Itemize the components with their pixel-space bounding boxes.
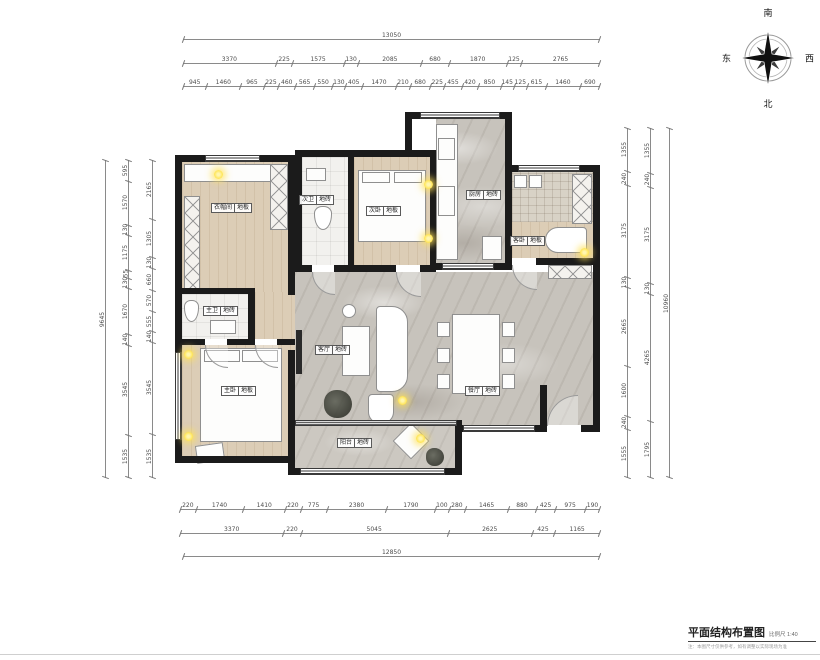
dim-segment: 2085	[358, 54, 421, 67]
dim-segment: 1465	[465, 500, 508, 513]
dim-segment: 220	[285, 500, 301, 513]
dim-segment: 13050	[183, 30, 600, 43]
dining-chair	[437, 348, 450, 363]
dim-segment: 100	[435, 500, 448, 513]
dim-segment: 1740	[196, 500, 244, 513]
dim-segment: 3175	[618, 185, 631, 277]
dim-segment: 420	[462, 77, 479, 90]
plant	[324, 390, 352, 418]
dim-segment: 1575	[292, 54, 343, 67]
dim-segment: 965	[240, 77, 264, 90]
stove	[438, 186, 455, 216]
window	[175, 352, 182, 440]
dim-segment: 425	[532, 524, 555, 537]
wall	[505, 172, 512, 265]
window	[295, 420, 457, 426]
dim-segment: 405	[345, 77, 362, 90]
dim-segment: 2165	[143, 160, 156, 219]
plant	[426, 448, 444, 466]
wardrobe	[572, 174, 592, 224]
pillow	[394, 172, 422, 183]
dim-segment: 1175	[119, 235, 132, 270]
dim-segment: 615	[527, 77, 546, 90]
dim-segment: 1355	[641, 128, 654, 173]
dim-segment: 220	[283, 524, 300, 537]
dim-segment: 660	[143, 268, 156, 291]
window	[205, 155, 260, 162]
tv	[296, 330, 302, 374]
washer	[514, 175, 527, 188]
dim-segment: 3545	[119, 345, 132, 435]
dining-chair	[437, 322, 450, 337]
wall	[295, 150, 436, 157]
dim-segment: 945	[183, 77, 206, 90]
dim-segment: 280	[449, 500, 466, 513]
dim-segment: 2380	[327, 500, 387, 513]
drawing-title: 平面结构布置图	[688, 624, 765, 640]
window	[463, 425, 535, 432]
wall	[540, 385, 547, 425]
dim-row-bottom-1: 2201740141022077523801790100280146588042…	[180, 500, 600, 513]
pouf	[342, 304, 356, 318]
dim-row-top-2: 33702251575130208568018701252765	[183, 54, 600, 67]
dim-segment: 570	[143, 290, 156, 311]
window	[420, 112, 500, 119]
dim-segment: 565	[295, 77, 314, 90]
door-opening	[512, 258, 536, 265]
room-label-kitchen: 厨房地砖	[466, 190, 501, 200]
window	[518, 165, 580, 172]
door-opening	[547, 425, 581, 432]
dim-segment: 975	[555, 500, 585, 513]
title-block: 平面结构布置图 比例尺 1:40 注：本图尺寸仅供参考，如有调整以实际现场为准	[688, 624, 816, 650]
wall	[348, 157, 354, 272]
dim-segment: 1460	[546, 77, 580, 90]
dim-segment: 1570	[119, 181, 132, 225]
dim-segment: 1555	[618, 429, 631, 478]
ceiling-light	[580, 248, 589, 257]
dim-segment: 1795	[641, 421, 654, 478]
dim-segment: 775	[301, 500, 327, 513]
dim-segment: 550	[314, 77, 332, 90]
ceiling-light	[184, 432, 193, 441]
dim-segment: 555	[143, 311, 156, 331]
dim-segment: 12850	[183, 547, 600, 560]
compass-label-south: 南	[763, 6, 772, 19]
dim-segment: 4265	[641, 294, 654, 421]
wall	[175, 288, 255, 294]
ceiling-light	[424, 180, 433, 189]
dim-segment: 190	[585, 500, 600, 513]
drawing-scale: 比例尺 1:40	[769, 630, 798, 638]
window	[442, 263, 494, 270]
dim-segment: 1355	[618, 128, 631, 171]
wall	[295, 157, 302, 272]
room-label-dining: 餐厅地砖	[465, 386, 500, 396]
dim-segment: 240	[618, 171, 631, 184]
washer	[529, 175, 542, 188]
wall	[430, 150, 436, 270]
dim-segment: 1165	[554, 524, 600, 537]
compass-rose: 南 北 东 西	[722, 6, 814, 110]
dim-segment: 455	[444, 77, 461, 90]
dining-chair	[502, 322, 515, 337]
dim-segment: 2765	[521, 54, 600, 67]
dim-segment: 3370	[183, 54, 276, 67]
door-opening	[396, 265, 420, 272]
dim-segment: 5045	[301, 524, 448, 537]
dim-col-right-total: 10960	[660, 128, 673, 478]
dim-col-left-a: 5951570130117555130167014035451535	[119, 160, 132, 478]
dim-segment: 125	[514, 77, 527, 90]
wardrobe	[184, 196, 200, 290]
wall	[175, 456, 295, 463]
shoe-cabinet	[548, 265, 592, 279]
dim-segment: 3175	[641, 187, 654, 283]
compass-label-east: 东	[722, 52, 731, 65]
door-opening	[312, 265, 334, 272]
dim-row-top-3: 9451460965225460565550130405147021068022…	[183, 77, 600, 90]
dim-segment: 3545	[143, 342, 156, 434]
wall	[593, 165, 600, 432]
floor-plan-sheet: 衣帽间地板次卫地砖次卧地板厨房地砖客卧地板主卫地砖主卧地板客厅地砖餐厅地砖阳台地…	[0, 0, 820, 660]
kitchen-sink	[438, 138, 455, 160]
dim-segment: 1460	[206, 77, 240, 90]
ceiling-light	[424, 234, 433, 243]
dim-segment: 1535	[143, 434, 156, 478]
wall	[288, 155, 295, 295]
ceiling-light	[398, 396, 407, 405]
dim-segment: 240	[641, 173, 654, 187]
room-label-cloakroom: 衣帽间地板	[211, 203, 252, 213]
ceiling-light	[184, 350, 193, 359]
dim-segment: 145	[501, 77, 514, 90]
sofa	[376, 306, 408, 392]
ceiling-light	[416, 434, 425, 443]
washbasin	[306, 168, 326, 181]
dim-segment: 850	[478, 77, 500, 90]
dim-segment: 690	[580, 77, 600, 90]
dim-segment: 2665	[618, 287, 631, 365]
dim-row-bottom-total: 12850	[183, 547, 600, 560]
dim-segment: 1870	[449, 54, 507, 67]
dim-segment: 680	[421, 54, 448, 67]
wall	[505, 112, 512, 172]
dim-segment: 1600	[618, 366, 631, 416]
drawing-note: 注：本图尺寸仅供参考，如有调整以实际现场为准	[688, 644, 816, 650]
fridge	[482, 236, 502, 260]
dim-segment: 460	[278, 77, 295, 90]
dim-segment: 595	[119, 160, 132, 181]
room-label-balcony: 阳台地砖	[337, 438, 372, 448]
pillow	[362, 172, 390, 183]
dining-table	[452, 314, 500, 394]
compass-star-icon	[722, 6, 814, 110]
dim-segment: 125	[507, 54, 521, 67]
compass-label-west: 西	[805, 52, 814, 65]
dim-segment: 1790	[386, 500, 435, 513]
dim-segment: 880	[508, 500, 536, 513]
wall	[288, 350, 295, 456]
dim-col-left-b: 2165130513066057055514035451535	[143, 160, 156, 478]
dining-chair	[502, 348, 515, 363]
dim-segment: 1470	[362, 77, 396, 90]
dim-segment: 1305	[143, 219, 156, 257]
room-label-bath2: 次卫地砖	[299, 195, 334, 205]
ceiling-light	[214, 170, 223, 179]
compass-label-north: 北	[763, 97, 772, 110]
dim-segment: 225	[276, 54, 293, 67]
dining-chair	[437, 374, 450, 389]
dining-chair	[502, 374, 515, 389]
dim-row-top-total: 13050	[183, 30, 600, 43]
dim-col-left-total: 9645	[96, 160, 109, 478]
dim-segment: 220	[180, 500, 196, 513]
room-label-living: 客厅地砖	[315, 345, 350, 355]
room-label-bath1: 主卫地砖	[203, 306, 238, 316]
dim-segment: 10960	[660, 128, 673, 478]
dim-segment: 225	[264, 77, 278, 90]
dim-segment: 425	[536, 500, 555, 513]
wardrobe	[270, 164, 288, 230]
dim-segment: 210	[396, 77, 410, 90]
room-label-bed2: 次卧地板	[366, 206, 401, 216]
window	[300, 468, 445, 475]
dim-segment: 1410	[243, 500, 285, 513]
wall	[248, 288, 255, 345]
dim-row-bottom-2: 3370220504526254251165	[180, 524, 600, 537]
dim-segment: 1535	[119, 435, 132, 478]
dim-segment: 1670	[119, 288, 132, 334]
room-label-guestbed: 客卧地板	[510, 236, 545, 246]
room-label-bed1: 主卧地板	[221, 386, 256, 396]
dim-col-right-inner: 13552403175130266516002401555	[618, 128, 631, 478]
wall	[455, 420, 462, 475]
washbasin	[210, 320, 236, 334]
dim-segment: 680	[410, 77, 430, 90]
dim-col-right-mid: 1355240317513042651795	[641, 128, 654, 478]
dim-segment: 9645	[96, 160, 109, 478]
dim-segment: 2625	[448, 524, 532, 537]
dim-segment: 3370	[180, 524, 283, 537]
page-edge-line	[0, 654, 820, 655]
